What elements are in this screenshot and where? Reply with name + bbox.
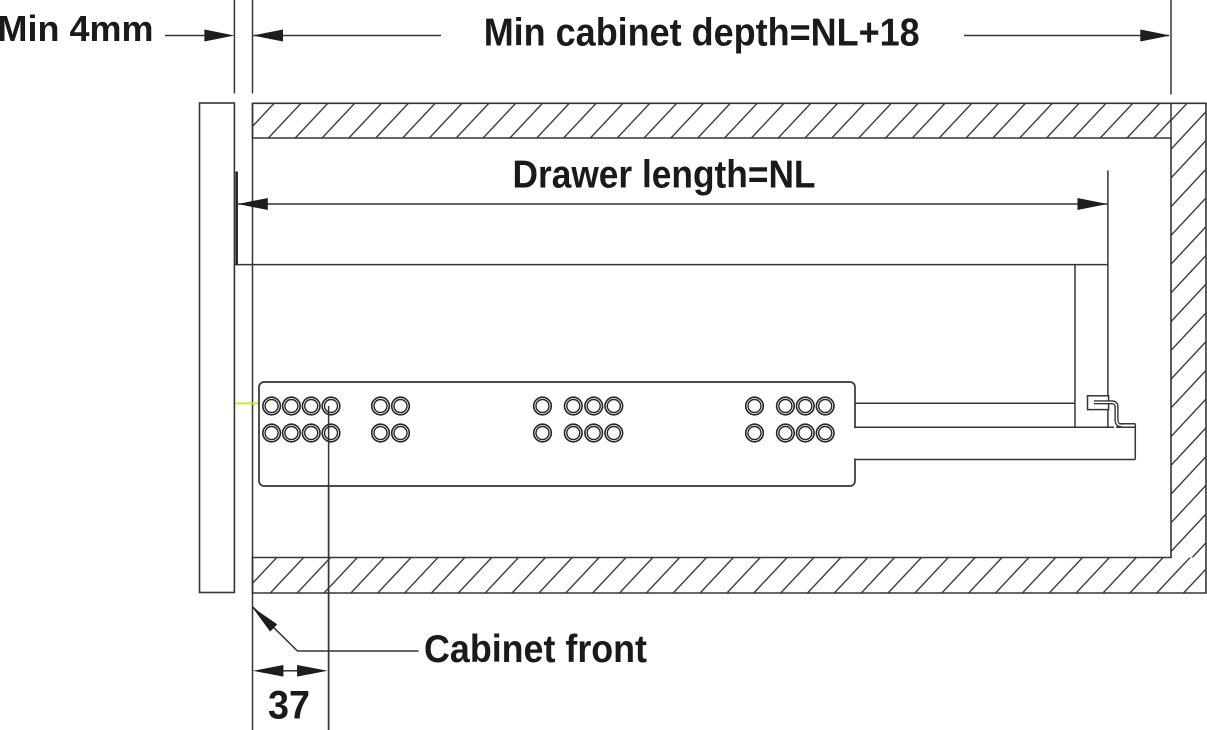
svg-text:37: 37 — [268, 684, 310, 728]
svg-text:Cabinet front: Cabinet front — [424, 628, 647, 671]
svg-text:Drawer length=NL: Drawer length=NL — [513, 154, 816, 197]
svg-text:Min cabinet depth=NL+18: Min cabinet depth=NL+18 — [484, 11, 920, 54]
svg-text:Min 4mm: Min 4mm — [0, 8, 154, 49]
